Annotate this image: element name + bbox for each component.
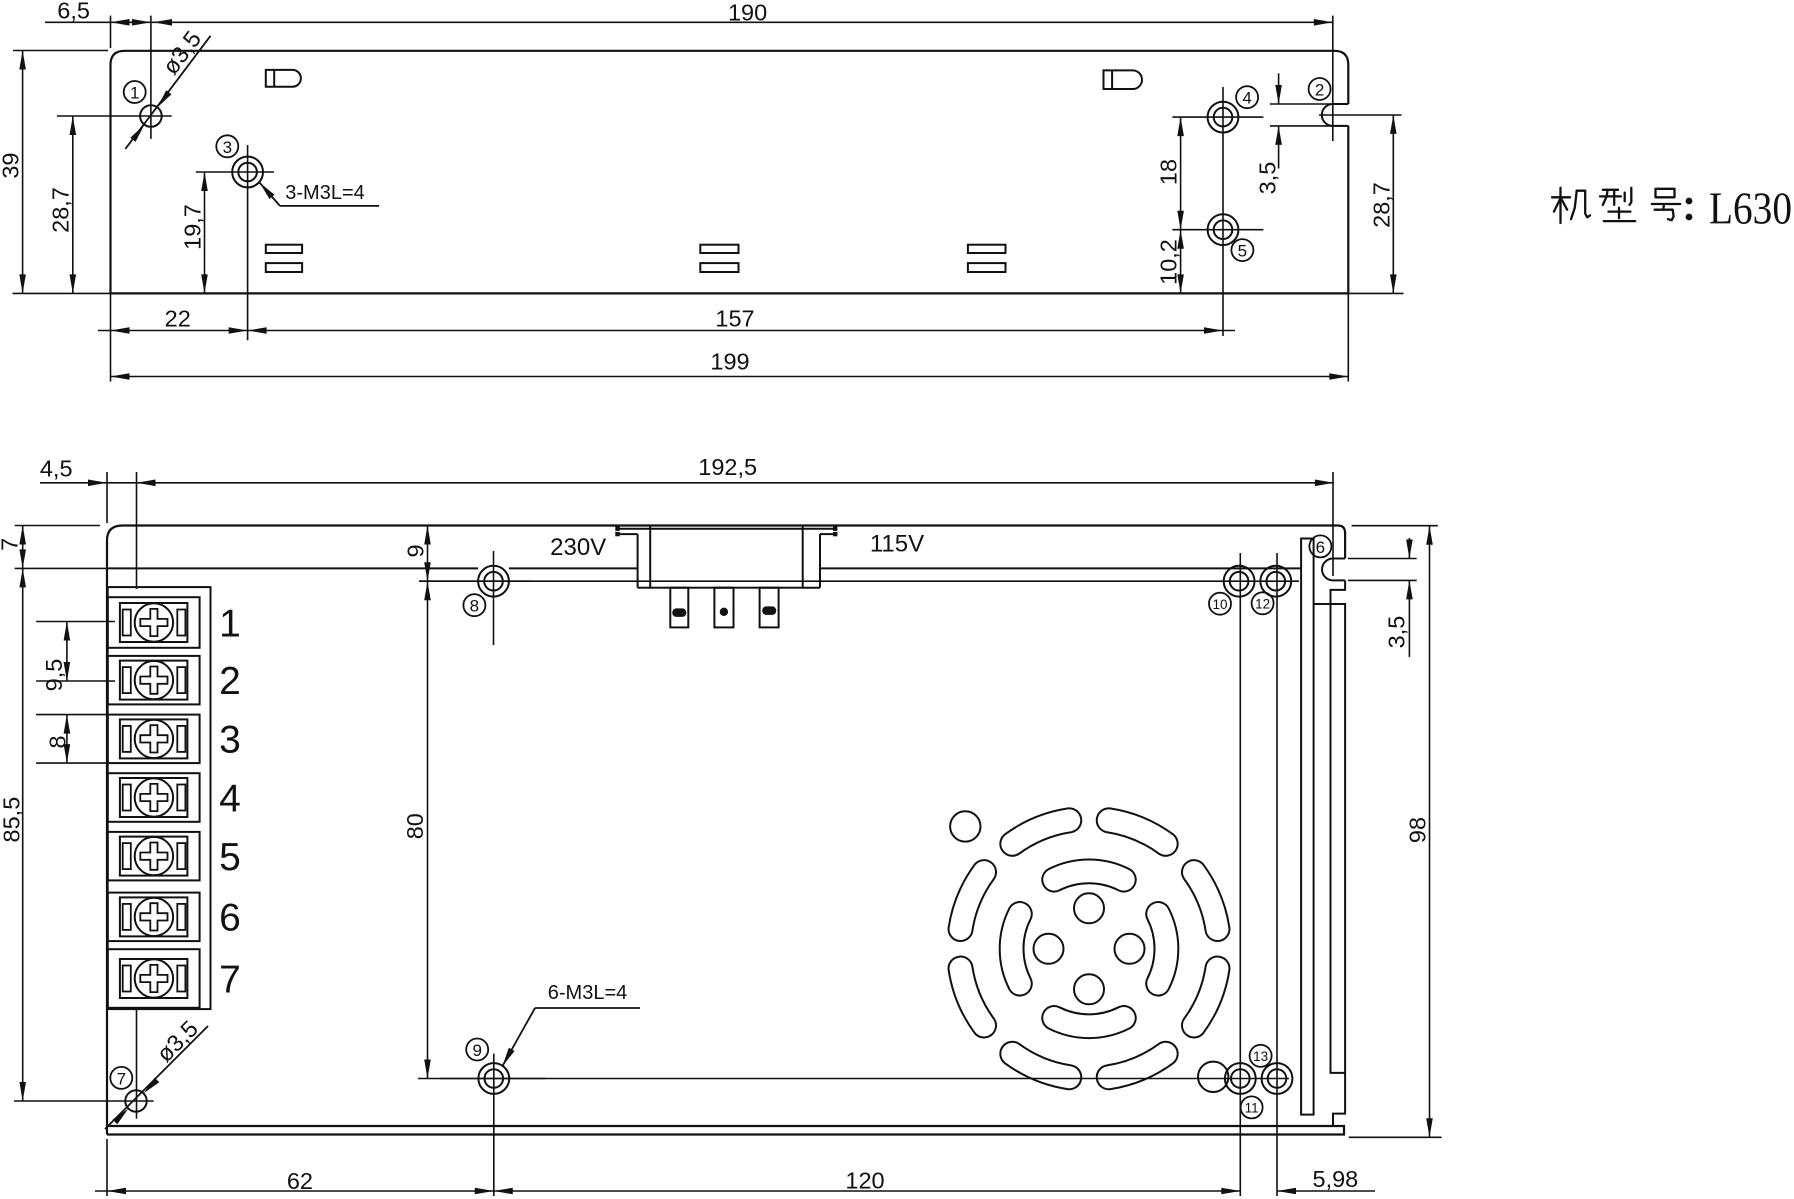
svg-text:190: 190 (728, 0, 767, 25)
svg-text:98: 98 (1404, 817, 1430, 843)
svg-text:7: 7 (219, 958, 241, 1001)
svg-text:9: 9 (402, 544, 428, 557)
svg-text:9,5: 9,5 (41, 659, 67, 692)
svg-text:9: 9 (472, 1041, 481, 1060)
svg-text:80: 80 (402, 813, 428, 839)
svg-text:6,5: 6,5 (57, 0, 90, 23)
svg-text:115V: 115V (870, 531, 924, 558)
svg-text:13: 13 (1253, 1049, 1268, 1064)
svg-text:3-M3L=4: 3-M3L=4 (285, 182, 365, 204)
svg-text:192,5: 192,5 (698, 454, 757, 480)
svg-text:8: 8 (470, 597, 479, 616)
svg-text:28,7: 28,7 (47, 187, 73, 233)
svg-text:5: 5 (219, 836, 241, 879)
svg-text:4: 4 (219, 777, 241, 820)
svg-text:3: 3 (223, 138, 232, 157)
svg-text:1: 1 (130, 84, 139, 103)
svg-text:10,2: 10,2 (1155, 239, 1181, 285)
svg-text:5,98: 5,98 (1313, 1166, 1359, 1192)
svg-text:6: 6 (219, 897, 241, 940)
svg-text:120: 120 (845, 1167, 884, 1193)
svg-text:3,5: 3,5 (1383, 616, 1409, 649)
svg-text:2: 2 (1315, 81, 1324, 100)
svg-text:4: 4 (1242, 89, 1251, 108)
svg-text:85,5: 85,5 (0, 797, 24, 843)
svg-text:18: 18 (1155, 159, 1181, 185)
svg-text:1: 1 (219, 602, 241, 645)
svg-text:11: 11 (1245, 1101, 1259, 1116)
svg-text:7: 7 (0, 538, 22, 551)
svg-text:5: 5 (1238, 242, 1247, 261)
svg-text:8: 8 (44, 735, 70, 748)
svg-text:199: 199 (710, 348, 749, 374)
svg-text:3: 3 (219, 719, 241, 762)
svg-text:7: 7 (117, 1069, 126, 1088)
svg-text:39: 39 (0, 153, 23, 179)
svg-text:3,5: 3,5 (1254, 162, 1280, 195)
svg-text:157: 157 (715, 305, 754, 331)
svg-text:19,7: 19,7 (179, 204, 205, 250)
svg-text:28,7: 28,7 (1368, 182, 1394, 228)
svg-text:230V: 230V (550, 534, 606, 561)
svg-text:10: 10 (1212, 597, 1227, 612)
svg-text:6: 6 (1316, 538, 1325, 557)
svg-text:62: 62 (287, 1168, 313, 1194)
svg-text:2: 2 (219, 660, 241, 703)
svg-text:6-M3L=4: 6-M3L=4 (548, 982, 628, 1004)
svg-text:22: 22 (165, 305, 191, 331)
svg-text:12: 12 (1255, 597, 1270, 612)
svg-text:4,5: 4,5 (40, 455, 73, 481)
svg-text:L630: L630 (1709, 183, 1792, 234)
